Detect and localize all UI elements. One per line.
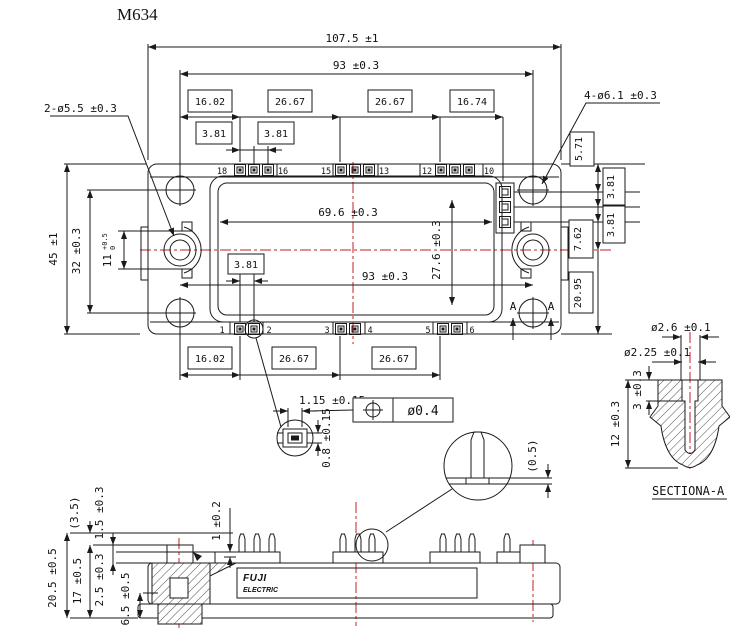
dim-pedestal: 1 ±0.2 — [210, 501, 223, 541]
pin-number: 2 — [266, 326, 271, 336]
dim-box: 16.02 — [195, 354, 225, 365]
pin-number: 3 — [324, 326, 329, 336]
dim-step1: 1.5 ±0.3 — [93, 487, 106, 540]
logo-plate: FUJI ELECTRIC — [237, 568, 477, 598]
dim-box: 20.95 — [573, 278, 584, 308]
pin-numbers: 18 16 15 13 12 10 1 2 3 4 5 6 — [217, 167, 494, 336]
right-terminal-column — [496, 183, 514, 233]
pin-number: 18 — [217, 167, 227, 177]
dim-box: 5.71 — [574, 137, 585, 161]
section-letter: A — [510, 300, 517, 313]
dim-body-height: 17 ±0.5 — [71, 558, 84, 604]
dim-overall-width: 107.5 ±1 — [326, 32, 379, 45]
raised-block — [520, 545, 545, 563]
left-tab — [141, 227, 148, 280]
pin-number: 16 — [278, 167, 288, 177]
dim-box: 3.81 — [202, 129, 226, 140]
dim-terminal-height: 0.8 ±0.15 — [320, 408, 333, 468]
dim-box: 16.74 — [457, 97, 487, 108]
section-caption: SECTIONA-A — [652, 484, 725, 498]
dim-box: 26.67 — [375, 97, 405, 108]
dimensions-left: 2-ø5.5 ±0.3 45 ±1 32 ±0.3 11 +0.5 0 — [44, 102, 184, 334]
side-view-pins — [239, 534, 510, 552]
pin-number: 13 — [379, 167, 389, 177]
svg-text:0: 0 — [109, 246, 117, 250]
dim-box: 3.81 — [264, 129, 288, 140]
dim-box: 3.81 — [606, 175, 617, 199]
label-left-holes: 2-ø5.5 ±0.3 — [44, 102, 117, 115]
pin-number: 1 — [219, 326, 224, 336]
technical-drawing: M634 — [0, 0, 730, 630]
dim-step2: 2.5 ±0.3 — [93, 554, 106, 607]
side-view: FUJI ELECTRIC — [138, 529, 560, 624]
dim-pin-protrusion: (3.5) — [68, 496, 81, 529]
top-terminals — [235, 164, 484, 177]
pin-number: 12 — [422, 167, 432, 177]
dim-opening-width: 69.6 ±0.3 — [318, 206, 378, 219]
pin-number: 15 — [321, 167, 331, 177]
dimensions-side: 20.5 ±0.5 17 ±0.5 (3.5) 1.5 ±0.3 2.5 ±0.… — [46, 487, 236, 626]
dim-box: 26.67 — [279, 354, 309, 365]
dimensions-top: 107.5 ±1 93 ±0.3 16.02 26.67 26.67 16.74… — [148, 32, 561, 183]
pin-detail-balloon: (0.5) — [386, 432, 552, 532]
pin-number: 10 — [484, 167, 494, 177]
dim-depth: 12 ±0.3 — [609, 401, 622, 447]
lid-inner — [218, 183, 494, 315]
pin-number: 5 — [425, 326, 430, 336]
dim-total-height: 20.5 ±0.5 — [46, 548, 59, 608]
pin-number: 6 — [469, 326, 474, 336]
label-right-holes: 4-ø6.1 ±0.3 — [584, 89, 657, 102]
dim-box: 3.81 — [606, 213, 617, 237]
fuji-logo-text: FUJI — [243, 573, 267, 584]
dim-slot: 11 +0.5 0 — [101, 233, 117, 267]
dim-hole-span-left: 32 ±0.3 — [70, 228, 83, 274]
balloon-leader — [386, 489, 452, 532]
dim-id: ø2.25 ±0.1 — [624, 346, 690, 359]
mounting-hole-bottom-right — [517, 297, 549, 329]
section-letter: A — [548, 300, 555, 313]
dim-opening-height: 27.6 ±0.3 — [430, 220, 443, 280]
section-aa: ø2.6 ±0.1 ø2.25 ±0.1 3 ±0.3 12 ±0.3 SECT… — [609, 321, 730, 499]
dim-box: 26.67 — [379, 354, 409, 365]
top-view: 18 16 15 13 12 10 1 2 3 4 5 6 A A — [141, 164, 568, 340]
pin-number: 4 — [367, 326, 372, 336]
terminal-detail: 1.15 ±0.15 0.8 ±0.15 ø0.4 — [273, 394, 453, 468]
drawing-title: M634 — [117, 5, 158, 24]
svg-text:+0.5: +0.5 — [101, 233, 109, 250]
dim-pin-pitch: 3.81 — [234, 260, 258, 271]
dim-counterbore-depth: 3 ±0.3 — [631, 370, 644, 410]
dimensions-center: 69.6 ±0.3 27.6 ±0.3 93 ±0.3 3.81 — [180, 200, 533, 427]
dim-overall-height: 45 ±1 — [47, 232, 60, 265]
dim-hole-span-bottom: 93 ±0.3 — [362, 270, 408, 283]
fuji-logo-subtext: ELECTRIC — [243, 587, 279, 594]
drawing-sheet: M634 — [0, 0, 730, 630]
right-tab — [561, 227, 568, 280]
dim-hole-span-top: 93 ±0.3 — [333, 59, 379, 72]
dimensions-right: 4-ø6.1 ±0.3 5.71 3.81 3.81 7.62 20.95 — [514, 89, 660, 334]
dim-box: 26.67 — [275, 97, 305, 108]
dim-box: 16.02 — [195, 97, 225, 108]
dim-od: ø2.6 ±0.1 — [651, 321, 711, 334]
svg-text:11: 11 — [101, 254, 114, 267]
position-tolerance-value: ø0.4 — [407, 404, 438, 419]
dim-standoff: (0.5) — [526, 439, 539, 472]
dim-boss-height: 6.5 ±0.5 — [119, 573, 132, 626]
mounting-hole-bottom-left — [164, 297, 196, 329]
dim-box: 7.62 — [573, 227, 584, 251]
